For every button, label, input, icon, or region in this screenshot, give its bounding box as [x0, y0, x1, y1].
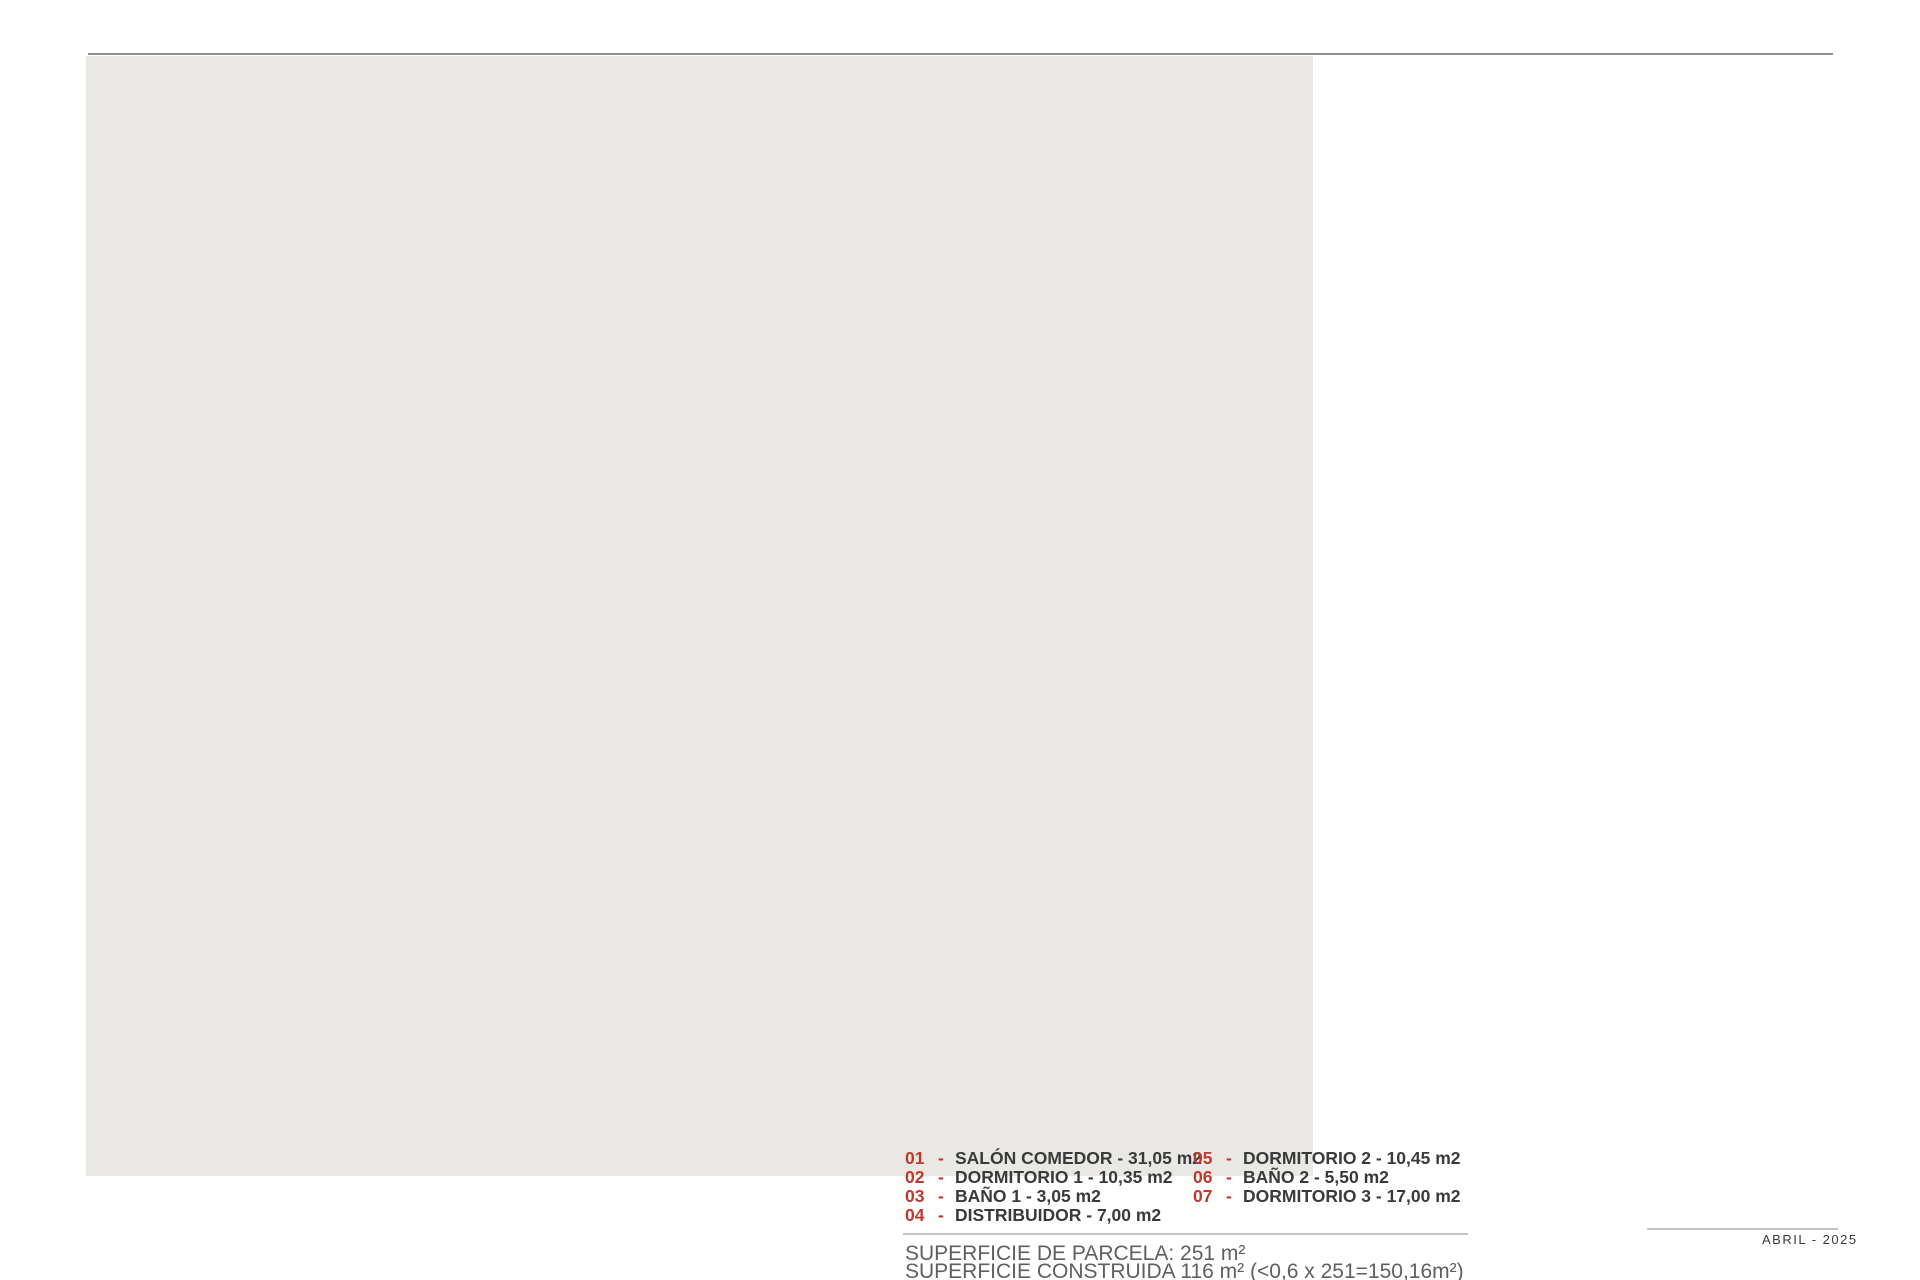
svg-text:02: 02 — [905, 1167, 925, 1187]
svg-text:DORMITORIO 3 - 17,00 m2: DORMITORIO 3 - 17,00 m2 — [1243, 1186, 1461, 1206]
svg-text:05: 05 — [1193, 1148, 1213, 1168]
svg-text:-: - — [938, 1167, 944, 1187]
svg-text:BAÑO 1 - 3,05 m2: BAÑO 1 - 3,05 m2 — [955, 1185, 1101, 1206]
svg-text:-: - — [938, 1205, 944, 1225]
svg-text:BAÑO 2 - 5,50 m2: BAÑO 2 - 5,50 m2 — [1243, 1166, 1389, 1187]
svg-text:-: - — [1226, 1148, 1232, 1168]
svg-text:-: - — [938, 1148, 944, 1168]
svg-text:-: - — [938, 1186, 944, 1206]
svg-text:SUPERFICIE CONSTRUIDA 116 m² (: SUPERFICIE CONSTRUIDA 116 m² (<0,6 x 251… — [905, 1260, 1464, 1280]
svg-text:-: - — [1226, 1167, 1232, 1187]
svg-text:04: 04 — [905, 1205, 925, 1225]
svg-text:DORMITORIO 2 - 10,45 m2: DORMITORIO 2 - 10,45 m2 — [1243, 1148, 1461, 1168]
svg-text:-: - — [1226, 1186, 1232, 1206]
svg-text:SALÓN COMEDOR - 31,05 m2: SALÓN COMEDOR - 31,05 m2 — [955, 1147, 1202, 1168]
svg-text:03: 03 — [905, 1186, 925, 1206]
svg-text:07: 07 — [1193, 1186, 1212, 1206]
svg-text:DORMITORIO 1 - 10,35 m2: DORMITORIO 1 - 10,35 m2 — [955, 1167, 1173, 1187]
svg-text:01: 01 — [905, 1148, 925, 1168]
svg-text:06: 06 — [1193, 1167, 1213, 1187]
svg-text:DISTRIBUIDOR - 7,00 m2: DISTRIBUIDOR - 7,00 m2 — [955, 1205, 1161, 1225]
svg-text:ABRIL - 2025: ABRIL - 2025 — [1762, 1232, 1858, 1247]
